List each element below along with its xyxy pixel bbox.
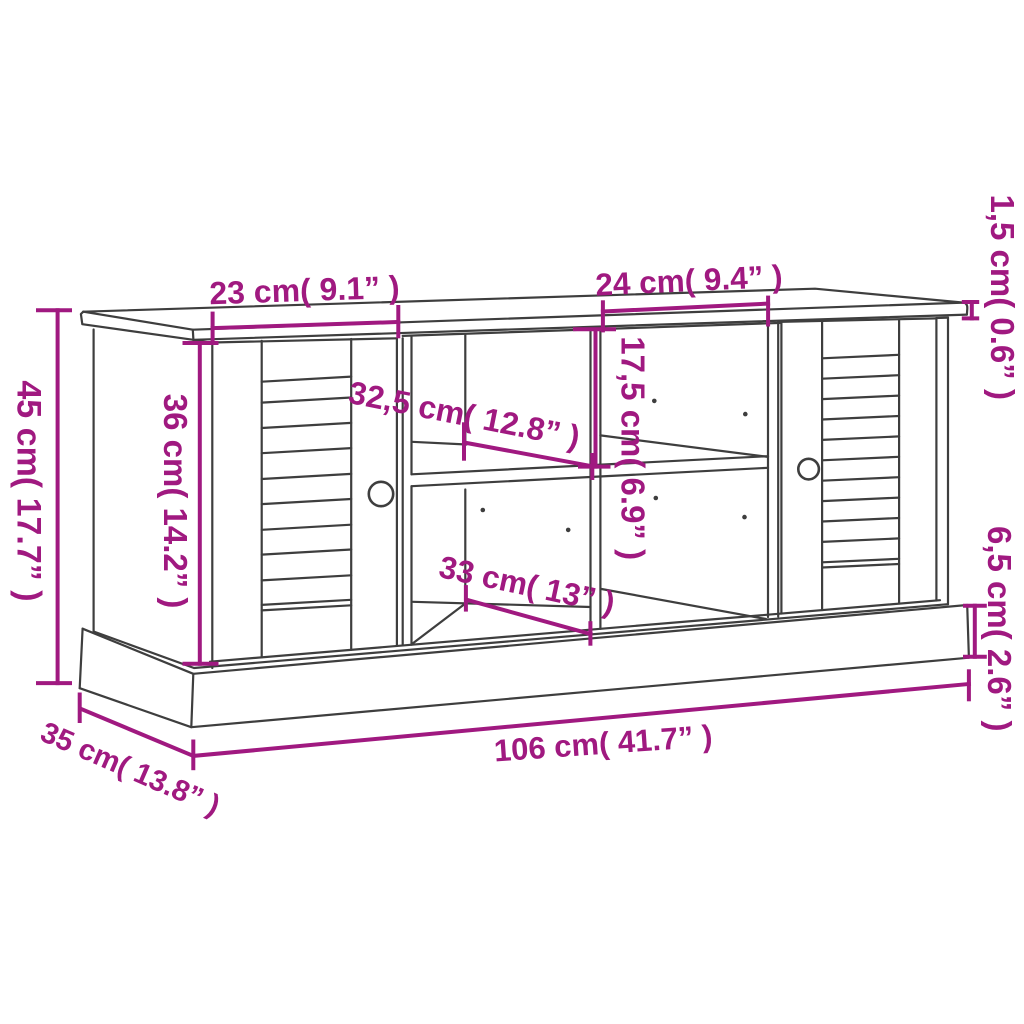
svg-text:45 cm( 17.7” ): 45 cm( 17.7” ) xyxy=(10,380,48,601)
svg-text:23 cm( 9.1” ): 23 cm( 9.1” ) xyxy=(209,269,400,311)
svg-text:1,5 cm( 0.6” ): 1,5 cm( 0.6” ) xyxy=(984,195,1021,400)
svg-text:17,5 cm( 6.9” ): 17,5 cm( 6.9” ) xyxy=(615,336,652,560)
svg-text:36 cm( 14.2” ): 36 cm( 14.2” ) xyxy=(157,394,194,609)
svg-text:6,5 cm( 2.6” ): 6,5 cm( 2.6” ) xyxy=(981,526,1018,731)
